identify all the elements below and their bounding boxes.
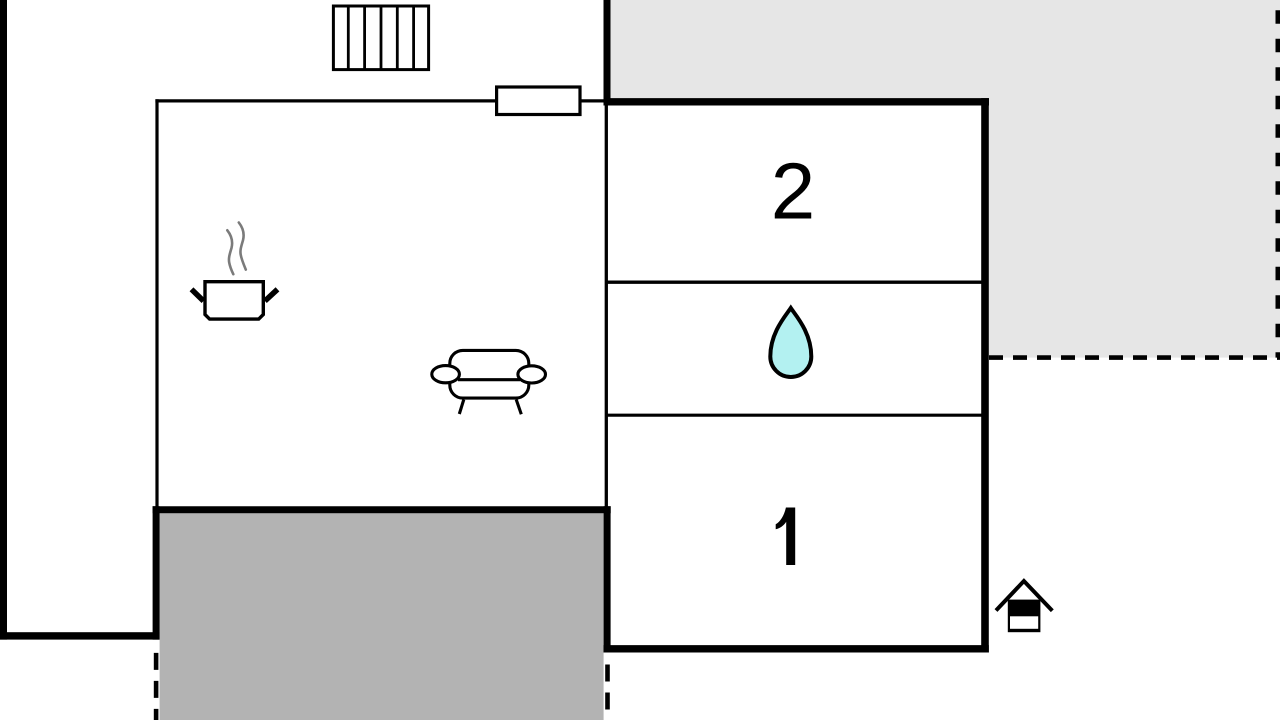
svg-text:2: 2	[771, 146, 816, 235]
